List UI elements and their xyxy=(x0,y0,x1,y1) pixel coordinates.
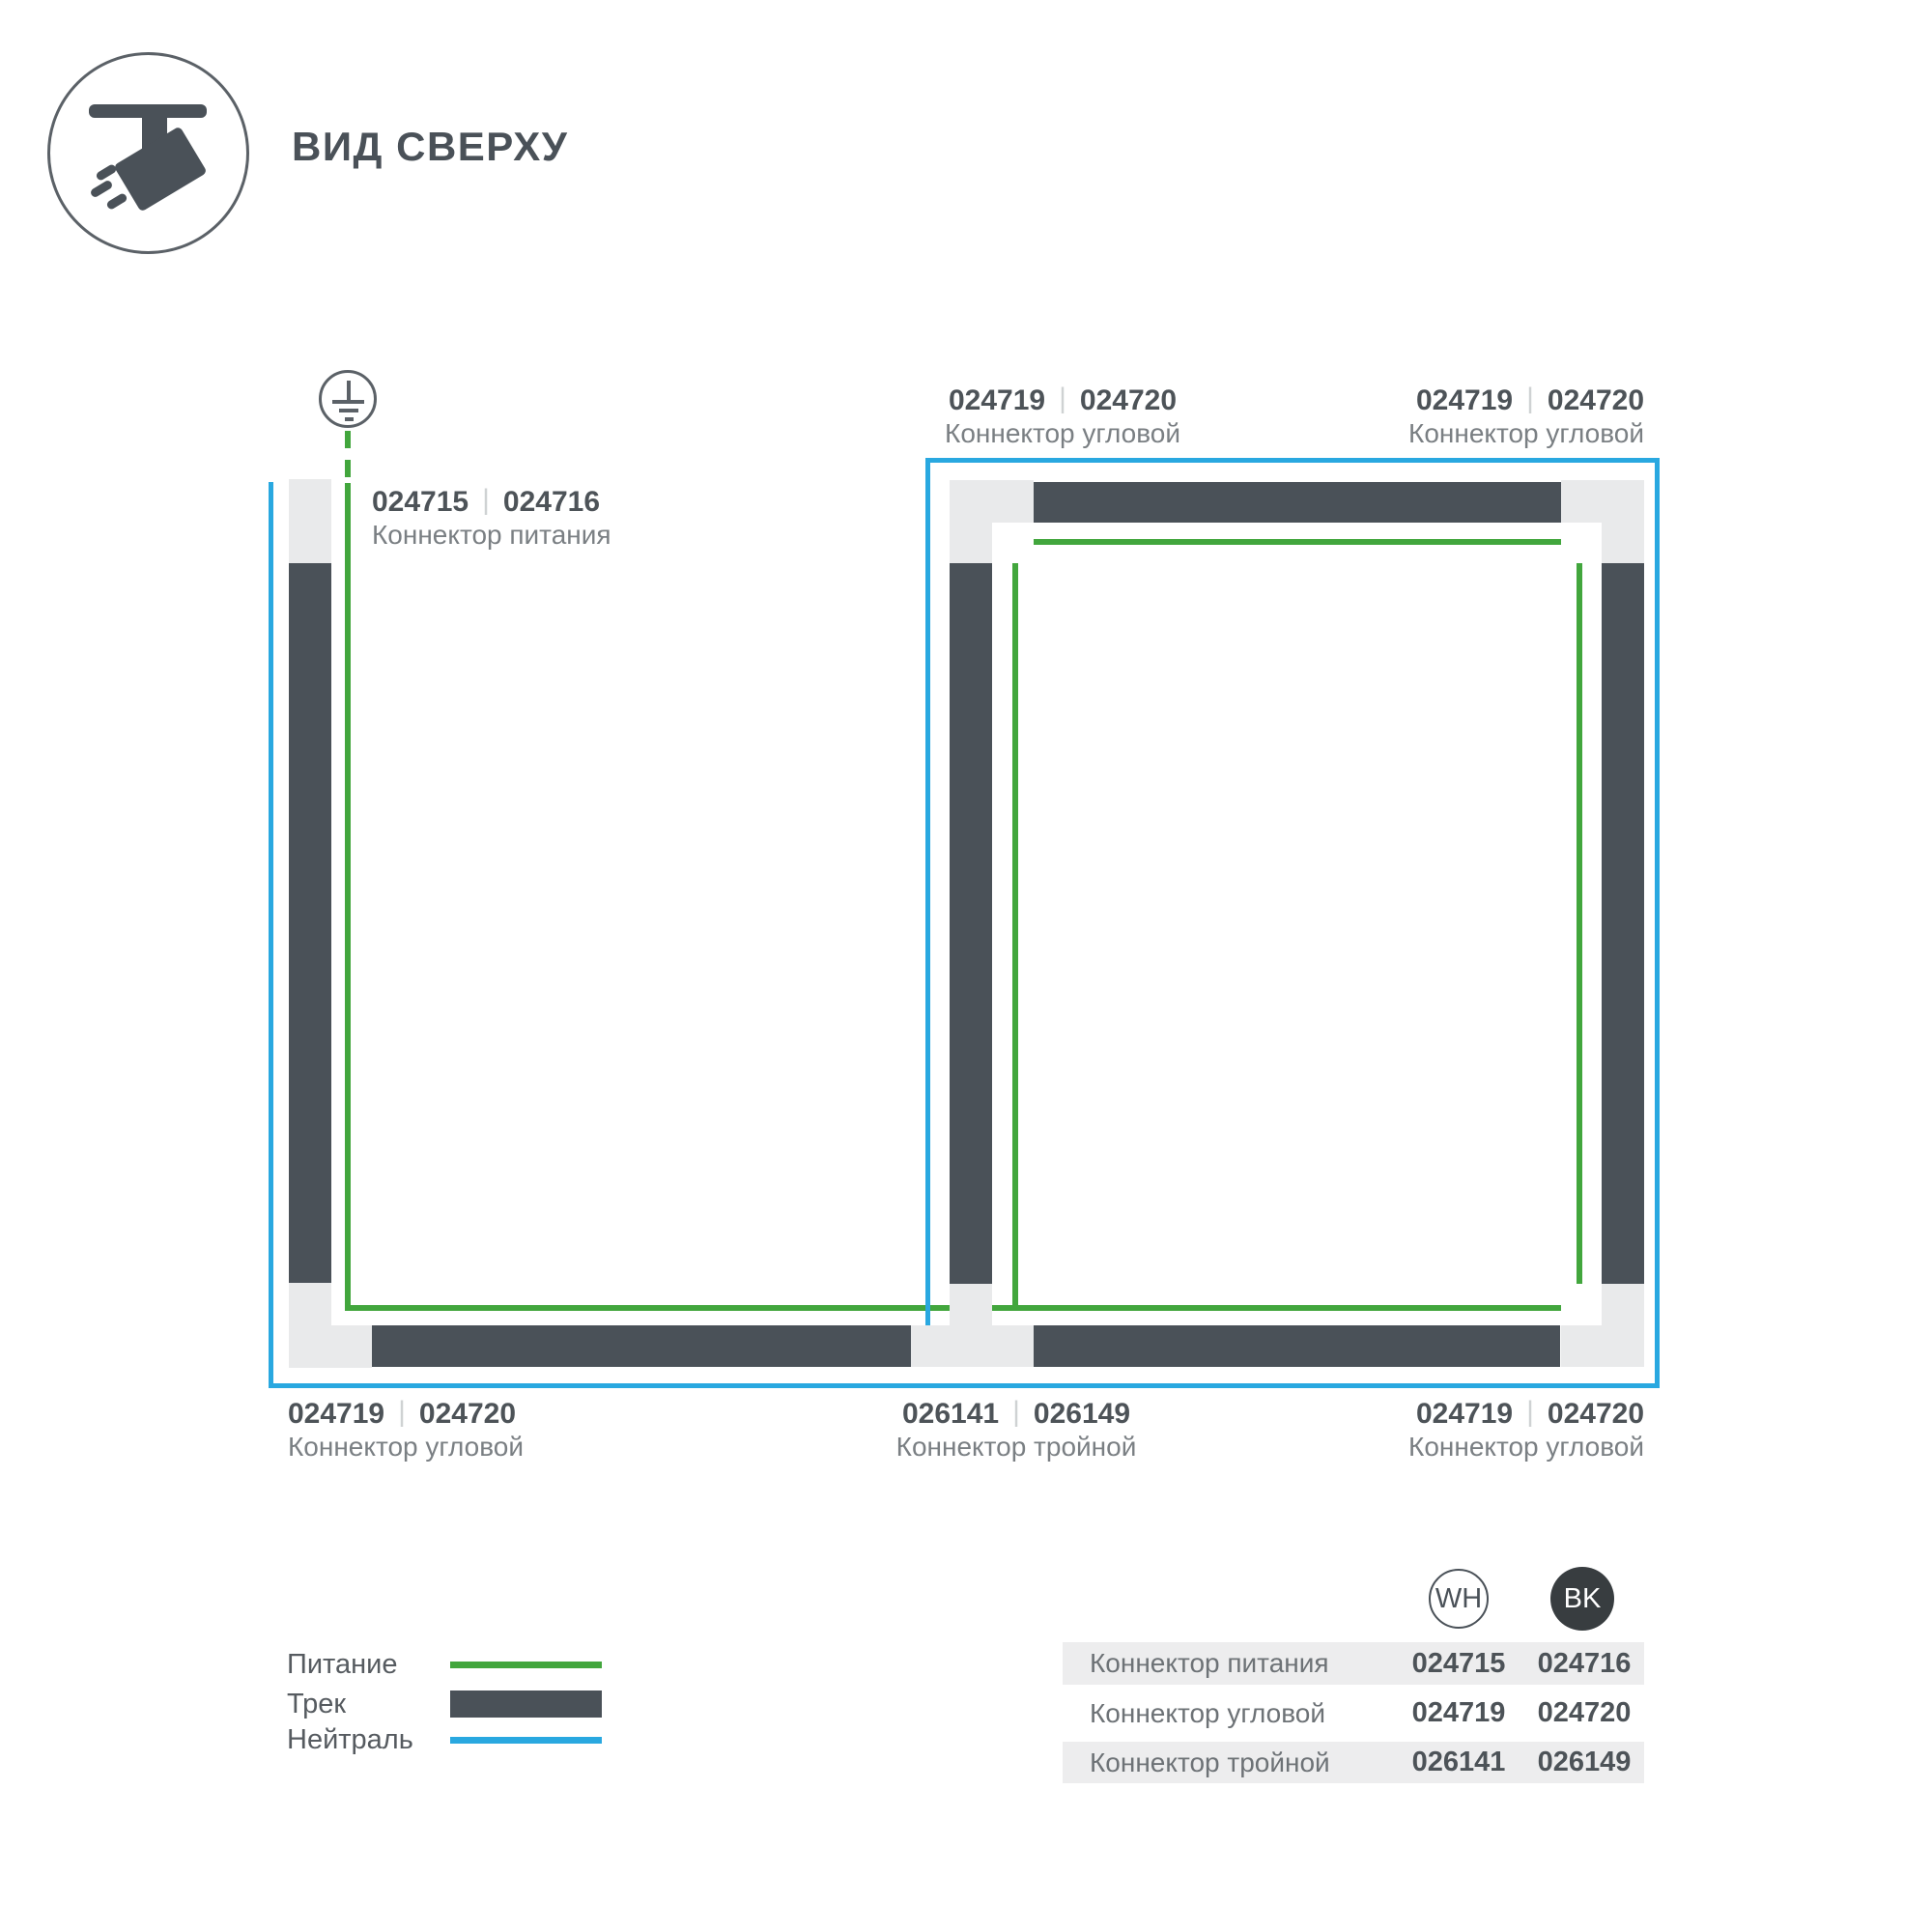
row-code-wh: 026141 xyxy=(1410,1747,1507,1778)
code-separator: | xyxy=(384,1396,419,1428)
neutral-line-middle-vertical xyxy=(925,458,930,1328)
row-code-bk: 024720 xyxy=(1536,1697,1633,1729)
ground-icon xyxy=(319,370,377,428)
color-badge-black: BK xyxy=(1550,1567,1614,1631)
top-view-diagram: ВИД СВЕРХУ 024715|024716 Коннектор питан… xyxy=(0,0,1932,1932)
track-bottom-left-horizontal xyxy=(372,1325,911,1367)
code-bk: 026149 xyxy=(1034,1398,1130,1430)
light-ray-glyph xyxy=(105,192,128,211)
code-separator: | xyxy=(469,484,503,516)
code-wh: 024719 xyxy=(1416,384,1513,416)
track-light-icon xyxy=(47,52,249,254)
track-left-vertical xyxy=(289,563,331,1283)
track-top-horizontal xyxy=(1034,482,1561,523)
label-corner-connector-bottom-left: 024719|024720 Коннектор угловой xyxy=(288,1398,524,1463)
connector-name: Коннектор угловой xyxy=(1408,417,1644,449)
connector-name: Коннектор питания xyxy=(372,519,611,551)
legend-label-neutral: Нейтраль xyxy=(287,1723,413,1756)
power-line-left-vertical xyxy=(345,483,351,1311)
table-row: Коннектор угловой 024719 024720 xyxy=(1063,1685,1644,1742)
code-separator: | xyxy=(1513,383,1548,414)
row-label: Коннектор угловой xyxy=(1063,1698,1410,1729)
code-bk: 024720 xyxy=(1548,1398,1644,1430)
track-right-vertical xyxy=(1602,563,1644,1284)
code-bk: 024720 xyxy=(419,1398,516,1430)
row-label: Коннектор тройной xyxy=(1063,1747,1410,1778)
label-corner-connector-top-right: 024719|024720 Коннектор угловой xyxy=(1408,384,1644,449)
row-code-wh: 024715 xyxy=(1410,1648,1507,1680)
label-corner-connector-top-middle: 024719|024720 Коннектор угловой xyxy=(945,384,1180,449)
code-separator: | xyxy=(1045,383,1080,414)
power-feed-dashed-line xyxy=(345,431,351,485)
power-line-right-loop xyxy=(1012,539,1582,1311)
corner-connector-piece-bottom-left xyxy=(289,1325,372,1368)
label-power-connector: 024715|024716 Коннектор питания xyxy=(372,486,611,551)
code-separator: | xyxy=(999,1396,1034,1428)
connector-name: Коннектор угловой xyxy=(945,417,1180,449)
legend-swatch-power-line xyxy=(450,1662,602,1668)
legend-swatch-neutral-line xyxy=(450,1737,602,1744)
table-row: Коннектор тройной 026141 026149 xyxy=(1063,1742,1644,1783)
code-bk: 024716 xyxy=(503,486,600,518)
track-middle-vertical xyxy=(950,563,992,1284)
neutral-line-right-vertical xyxy=(1655,458,1660,1388)
triple-connector-piece xyxy=(911,1325,1034,1367)
neutral-line-top-horizontal xyxy=(925,458,1660,463)
triple-connector-piece-stem xyxy=(950,1283,992,1327)
page-title: ВИД СВЕРХУ xyxy=(292,124,568,170)
row-code-wh: 024719 xyxy=(1410,1697,1507,1729)
spotlight-head-glyph xyxy=(113,126,207,212)
legend-swatch-track xyxy=(450,1690,602,1718)
neutral-line-left-vertical xyxy=(269,482,273,1388)
power-connector-piece xyxy=(289,479,331,563)
code-bk: 024720 xyxy=(1080,384,1177,416)
row-code-bk: 026149 xyxy=(1536,1747,1633,1778)
code-wh: 024715 xyxy=(372,486,469,518)
legend-label-track: Трек xyxy=(287,1688,346,1720)
code-wh: 024719 xyxy=(949,384,1045,416)
label-triple-connector: 026141|026149 Коннектор тройной xyxy=(896,1398,1137,1463)
connector-name: Коннектор угловой xyxy=(288,1431,524,1463)
light-ray-glyph xyxy=(95,163,117,182)
row-code-bk: 024716 xyxy=(1536,1648,1633,1680)
code-wh: 024719 xyxy=(1416,1398,1513,1430)
neutral-line-bottom-horizontal xyxy=(269,1383,1660,1388)
track-bottom-right-horizontal xyxy=(1034,1325,1560,1367)
connector-name: Коннектор тройной xyxy=(896,1431,1137,1463)
connector-name: Коннектор угловой xyxy=(1408,1431,1644,1463)
code-separator: | xyxy=(1513,1396,1548,1428)
light-ray-glyph xyxy=(89,179,113,198)
table-row: Коннектор питания 024715 024716 xyxy=(1063,1642,1644,1685)
color-badge-white: WH xyxy=(1429,1569,1489,1629)
code-wh: 026141 xyxy=(902,1398,999,1430)
code-wh: 024719 xyxy=(288,1398,384,1430)
legend-label-power: Питание xyxy=(287,1648,397,1681)
code-bk: 024720 xyxy=(1548,384,1644,416)
row-label: Коннектор питания xyxy=(1063,1648,1410,1679)
label-corner-connector-bottom-right: 024719|024720 Коннектор угловой xyxy=(1408,1398,1644,1463)
